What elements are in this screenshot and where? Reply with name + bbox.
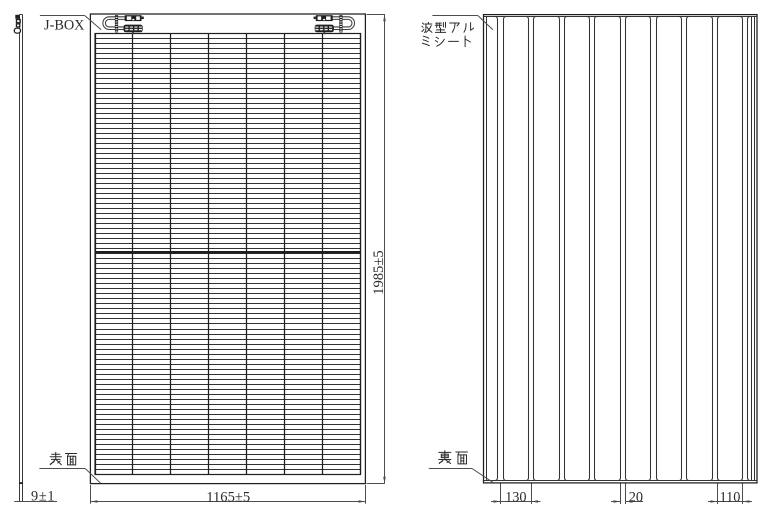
svg-text:20: 20: [629, 489, 643, 505]
svg-text:9±1: 9±1: [31, 488, 55, 504]
svg-text:J-BOX: J-BOX: [44, 18, 85, 34]
svg-text:1985±5: 1985±5: [371, 250, 387, 295]
svg-text:110: 110: [720, 489, 741, 505]
svg-text:130: 130: [505, 489, 526, 505]
svg-text:1165±5: 1165±5: [206, 489, 250, 505]
